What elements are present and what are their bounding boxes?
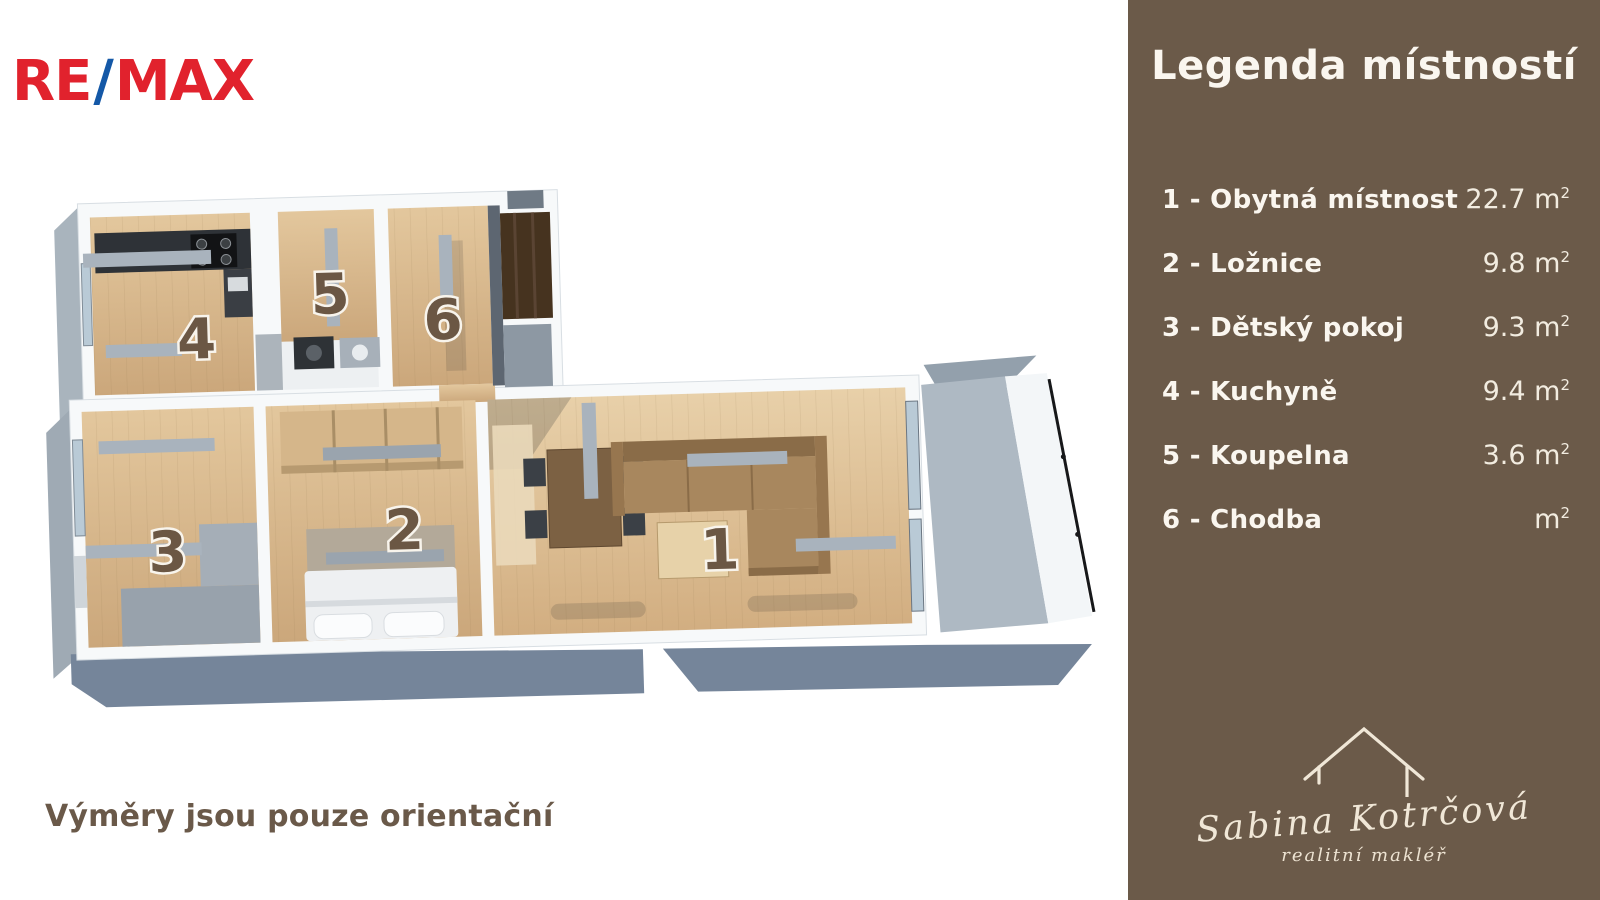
wall-cap xyxy=(507,190,544,209)
oven-door xyxy=(228,277,248,292)
hall-door-opening xyxy=(439,384,496,404)
chair xyxy=(523,458,546,487)
burner xyxy=(221,254,231,264)
floor-shadow xyxy=(747,593,857,612)
apartment-model: 1 2 3 4 5 6 xyxy=(39,174,1096,715)
area-value: 22.7 xyxy=(1465,184,1525,215)
room-label: 6 - Chodba xyxy=(1162,505,1322,535)
room-label: 3 - Dětský pokoj xyxy=(1162,313,1404,343)
burner xyxy=(221,238,231,248)
outer-wall-bottom-right xyxy=(663,636,1093,697)
kids-room-furniture-2 xyxy=(199,523,259,587)
legend-item: 5 - Koupelna 3.6 m2 xyxy=(1162,440,1570,474)
area-superscript: 2 xyxy=(1560,504,1570,522)
flyer-page: RE/MAX xyxy=(0,0,1600,900)
room-number-5: 5 xyxy=(310,262,351,328)
room-label: 2 - Ložnice xyxy=(1162,249,1322,279)
balcony-door-glass xyxy=(909,519,924,611)
lintel-bar xyxy=(106,343,182,358)
area-superscript: 2 xyxy=(1560,440,1570,458)
area-unit: m xyxy=(1534,248,1560,279)
area-unit: m xyxy=(1534,504,1560,535)
kids-room-window xyxy=(72,440,85,536)
oven xyxy=(223,269,252,318)
room-area: 9.3 m2 xyxy=(1483,312,1570,343)
legend-item: 1 - Obytná místnost 22.7 m2 xyxy=(1162,184,1570,218)
area-superscript: 2 xyxy=(1560,184,1570,202)
sofa-arm-left xyxy=(611,442,625,516)
legend-item: 3 - Dětský pokoj 9.3 m2 xyxy=(1162,312,1570,346)
pillow xyxy=(314,613,373,639)
burner xyxy=(197,239,207,249)
lintel-bar xyxy=(582,403,599,499)
balcony-window xyxy=(906,401,921,509)
legend-item: 4 - Kuchyně 9.4 m2 xyxy=(1162,376,1570,410)
room-number-1: 1 xyxy=(700,517,741,583)
room-number-3: 3 xyxy=(147,520,188,586)
room-area: 9.4 m2 xyxy=(1483,376,1570,407)
legend-sidebar: Legenda místností 1 - Obytná místnost 22… xyxy=(1128,0,1600,900)
legend-item: 2 - Ložnice 9.8 m2 xyxy=(1162,248,1570,282)
room-area: 9.8 m2 xyxy=(1483,248,1570,279)
room-number-6: 6 xyxy=(423,287,464,353)
kids-room-furniture xyxy=(121,585,261,647)
area-unit: m xyxy=(1534,440,1560,471)
room-area: 22.7 m2 xyxy=(1465,184,1570,215)
area-superscript: 2 xyxy=(1560,376,1570,394)
room-label: 4 - Kuchyně xyxy=(1162,377,1338,407)
floorplan-3d-render: 1 2 3 4 5 6 xyxy=(0,0,1128,900)
hall-wardrobe xyxy=(500,212,553,319)
kitchen-window xyxy=(81,263,92,345)
area-unit: m xyxy=(1534,312,1560,343)
area-value: 3.6 xyxy=(1483,440,1526,471)
room-label: 1 - Obytná místnost xyxy=(1162,185,1458,215)
room-area: 3.6 m2 xyxy=(1483,440,1570,471)
room-area: m2 xyxy=(1534,504,1570,535)
legend-item: 6 - Chodba m2 xyxy=(1162,504,1570,538)
area-value: 9.4 xyxy=(1483,376,1526,407)
disclaimer-note: Výměry jsou pouze orientační xyxy=(45,799,553,834)
pillow xyxy=(384,611,445,637)
area-superscript: 2 xyxy=(1560,312,1570,330)
legend-list: 1 - Obytná místnost 22.7 m2 2 - Ložnice … xyxy=(1128,184,1600,538)
area-superscript: 2 xyxy=(1560,248,1570,266)
house-outline-icon xyxy=(1299,717,1429,797)
wall-face xyxy=(503,324,553,387)
room-number-4: 4 xyxy=(176,307,217,373)
area-unit: m xyxy=(1534,184,1560,215)
floor-shadow xyxy=(550,601,645,620)
area-value: 9.3 xyxy=(1483,312,1526,343)
house-roof xyxy=(1305,729,1423,779)
area-unit: m xyxy=(1534,376,1560,407)
room-number-2: 2 xyxy=(384,498,425,564)
area-value: 9.8 xyxy=(1483,248,1526,279)
agent-signature: Sabina Kotrčová realitní makléř xyxy=(1128,717,1600,866)
doorway-shadow xyxy=(255,334,283,391)
legend-title: Legenda místností xyxy=(1148,42,1580,90)
room-label: 5 - Koupelna xyxy=(1162,441,1350,471)
chair xyxy=(525,510,548,539)
window-sill xyxy=(74,556,88,608)
rug xyxy=(492,424,536,565)
